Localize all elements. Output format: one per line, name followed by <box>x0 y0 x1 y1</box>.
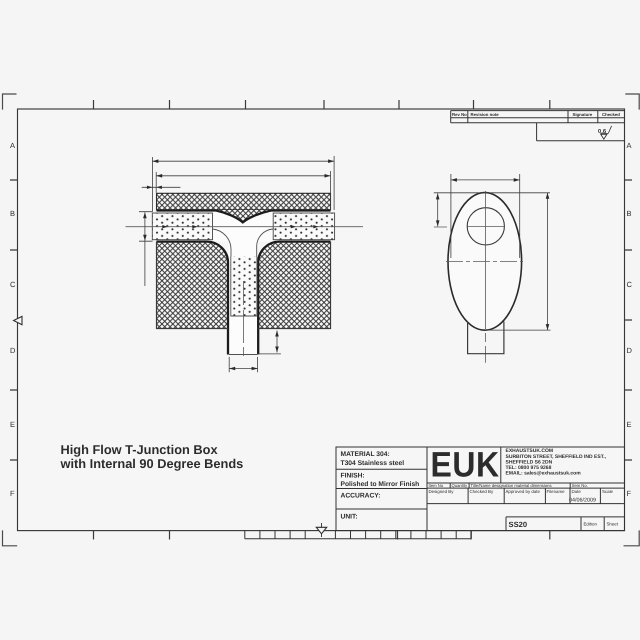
svg-text:Approved by date: Approved by date <box>506 489 541 494</box>
svg-text:A: A <box>10 141 15 150</box>
svg-text:E: E <box>627 420 632 429</box>
svg-text:Item No: Item No <box>429 483 444 488</box>
svg-text:Scale: Scale <box>602 489 614 494</box>
svg-text:EMAIL: sales@exhaustsuk.com: EMAIL: sales@exhaustsuk.com <box>506 471 582 477</box>
svg-text:Edition: Edition <box>584 522 598 527</box>
svg-text:D: D <box>627 346 633 355</box>
svg-text:T304 Stainless steel: T304 Stainless steel <box>341 460 405 467</box>
svg-text:Polished to Mirror Finish: Polished to Mirror Finish <box>341 481 420 488</box>
svg-text:C: C <box>10 280 16 289</box>
svg-text:Revision note: Revision note <box>471 112 500 117</box>
svg-text:Signature: Signature <box>573 112 593 117</box>
svg-text:Quantity: Quantity <box>452 483 469 488</box>
svg-text:D: D <box>10 346 16 355</box>
svg-text:Rev No: Rev No <box>452 112 467 117</box>
svg-text:with Internal 90 Degree Bends: with Internal 90 Degree Bends <box>60 456 244 471</box>
svg-text:EUK: EUK <box>431 445 500 485</box>
svg-text:F: F <box>10 489 15 498</box>
svg-text:Date: Date <box>572 489 582 494</box>
svg-text:E: E <box>10 420 15 429</box>
svg-text:ACCURACY:: ACCURACY: <box>341 493 381 500</box>
svg-text:B: B <box>627 209 632 218</box>
svg-text:Checked: Checked <box>602 112 620 117</box>
svg-text:Designed By: Designed By <box>429 489 455 494</box>
svg-text:Sheet: Sheet <box>607 522 619 527</box>
svg-text:A: A <box>627 141 632 150</box>
svg-text:Title/Name designation materia: Title/Name designation material dimensio… <box>471 483 552 488</box>
svg-text:UNIT:: UNIT: <box>341 514 358 521</box>
svg-text:C: C <box>627 280 633 289</box>
svg-text:SS20: SS20 <box>509 520 528 529</box>
svg-text:Filename: Filename <box>547 489 566 494</box>
svg-text:F: F <box>627 489 632 498</box>
svg-text:High Flow T-Junction Box: High Flow T-Junction Box <box>61 442 219 457</box>
svg-text:MATERIAL 304:: MATERIAL 304: <box>341 451 390 458</box>
svg-text:Item No.: Item No. <box>572 483 588 488</box>
svg-text:Checked By: Checked By <box>470 489 494 494</box>
svg-text:B: B <box>10 209 15 218</box>
svg-text:FINISH:: FINISH: <box>341 473 365 480</box>
svg-text:04/06/2009: 04/06/2009 <box>569 498 596 504</box>
